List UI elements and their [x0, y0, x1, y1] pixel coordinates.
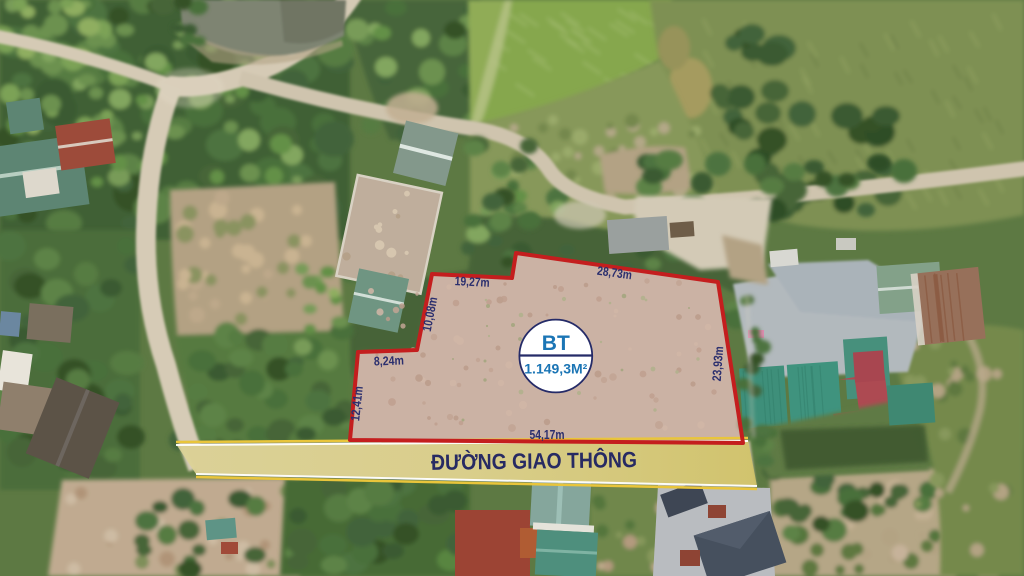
svg-text:54,17m: 54,17m: [530, 428, 565, 442]
svg-text:8,24m: 8,24m: [374, 353, 404, 368]
svg-text:23,93m: 23,93m: [710, 346, 726, 382]
svg-text:ĐƯỜNG GIAO THÔNG: ĐƯỜNG GIAO THÔNG: [431, 447, 637, 475]
svg-text:1.149,3M²: 1.149,3M²: [524, 361, 587, 377]
svg-text:BT: BT: [542, 332, 570, 355]
svg-text:19,27m: 19,27m: [454, 274, 490, 290]
